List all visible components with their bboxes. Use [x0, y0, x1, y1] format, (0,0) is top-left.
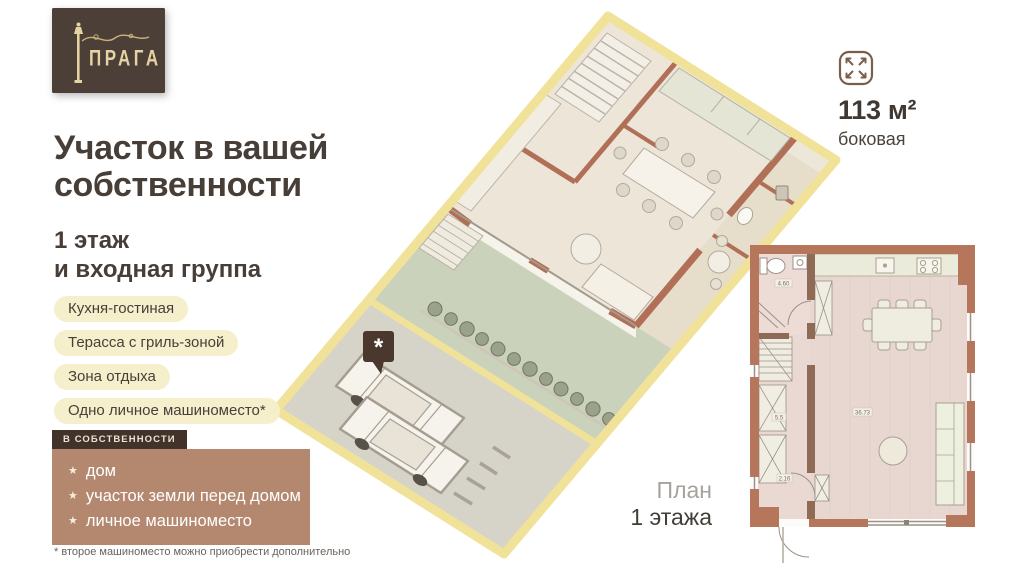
coffee-table [571, 234, 601, 264]
feature-pill-kitchen: Кухня-гостиная [54, 296, 188, 322]
area-badge: 113 м² боковая [838, 50, 916, 150]
expand-icon[interactable] [838, 50, 874, 86]
area-label: боковая [838, 129, 916, 150]
ownership-box: ★дом ★участок земли перед домом ★личное … [52, 449, 310, 545]
sofa-2d [936, 403, 964, 505]
plan-caption-line2: 1 этажа [540, 504, 712, 531]
pin-star: * [374, 334, 384, 361]
grill [776, 186, 788, 200]
label-bathroom: 4.60 [778, 282, 790, 288]
ownership-item-land: ★участок земли перед домом [68, 484, 294, 509]
page-title-line2: собственности [54, 167, 328, 204]
floor-plan-2d: 4.60 5.5 2.16 36.73 [750, 245, 975, 565]
page-subtitle: 1 этаж и входная группа [54, 227, 261, 285]
toilet-2d [767, 259, 785, 274]
page-subtitle-line2: и входная группа [54, 256, 261, 285]
dining-set-2d [863, 300, 941, 350]
ownership-item-parking: ★личное машиноместо [68, 509, 294, 534]
kitchen-counter-2d [810, 254, 959, 276]
star-icon: ★ [68, 489, 78, 502]
plan-caption-line1: План [540, 477, 712, 504]
page-subtitle-line1: 1 этаж [54, 227, 261, 256]
feature-list: Кухня-гостиная Терасса с гриль-зоной Зон… [54, 296, 280, 432]
star-icon: ★ [68, 514, 78, 527]
ownership-item-house: ★дом [68, 459, 294, 484]
footnote: * второе машиноместо можно приобрести до… [54, 546, 350, 558]
area-value: 113 м² [838, 95, 916, 126]
label-entry: 2.16 [779, 477, 791, 483]
ownership-block: в собственности ★дом ★участок земли пере… [52, 429, 310, 545]
feature-pill-parking: Одно личное машиноместо* [54, 398, 280, 424]
page-title: Участок в вашей собственности [54, 130, 328, 205]
label-living: 36.73 [855, 411, 871, 417]
washbasin [793, 256, 807, 269]
page-title-line1: Участок в вашей [54, 130, 328, 167]
slide-canvas: * ПРАГА Участок в вашей собственности 1 … [0, 0, 1024, 576]
brand-logo: ПРАГА [52, 8, 165, 93]
brand-name: ПРАГА [89, 47, 162, 72]
ownership-tab: в собственности [52, 430, 187, 449]
plan-caption: План 1 этажа [540, 477, 712, 531]
stairs-2d [759, 337, 792, 381]
star-icon: ★ [68, 464, 78, 477]
feature-pill-rest: Зона отдыха [54, 364, 170, 390]
feature-pill-terrace: Терасса с гриль-зоной [54, 330, 238, 356]
label-hall: 5.5 [775, 416, 784, 422]
round-table-2d [879, 437, 907, 465]
